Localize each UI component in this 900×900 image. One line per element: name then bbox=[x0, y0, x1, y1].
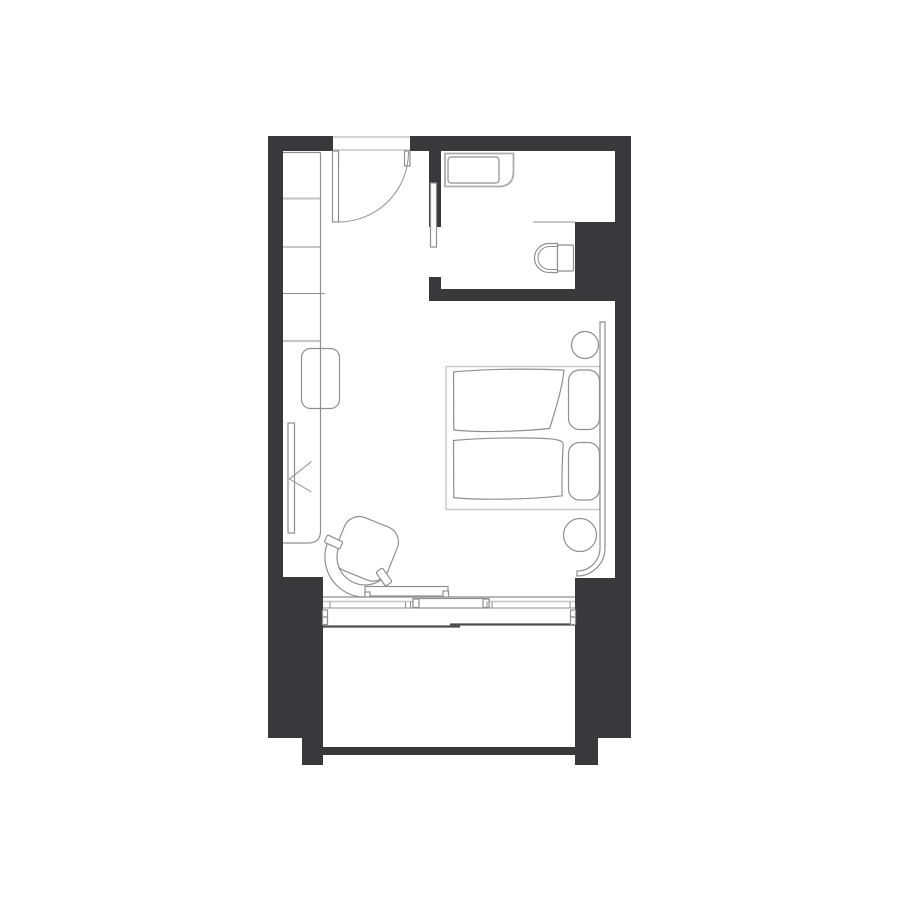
toilet-tank bbox=[558, 245, 574, 271]
sliding-panel-inner-handle bbox=[443, 591, 449, 597]
duvet-right bbox=[454, 438, 564, 499]
floor-plan-drawing bbox=[0, 0, 900, 900]
sliding-panel-inner-foot-left bbox=[365, 592, 370, 597]
window-frame-end-left bbox=[323, 610, 328, 625]
sliding-panel-inner bbox=[365, 587, 448, 597]
bathroom-pocket-door bbox=[431, 183, 437, 247]
bathroom-service-pier bbox=[575, 222, 615, 301]
round-side-table-top bbox=[572, 332, 599, 359]
window-frame-end-right bbox=[571, 610, 576, 625]
floor-plan-page bbox=[0, 0, 900, 900]
balcony-parapet-wall bbox=[323, 747, 575, 755]
pillow-right bbox=[569, 443, 600, 501]
sliding-panel-outer bbox=[413, 599, 489, 609]
toilet bbox=[535, 244, 574, 273]
page-background bbox=[0, 0, 900, 900]
pillow-left bbox=[569, 370, 600, 430]
door-leaf bbox=[333, 151, 339, 222]
sliding-panel-outer-handle-right bbox=[483, 599, 489, 608]
duvet-left bbox=[454, 369, 565, 431]
sliding-panel-outer-handle-left bbox=[413, 599, 419, 608]
round-side-table-bottom bbox=[564, 519, 597, 552]
